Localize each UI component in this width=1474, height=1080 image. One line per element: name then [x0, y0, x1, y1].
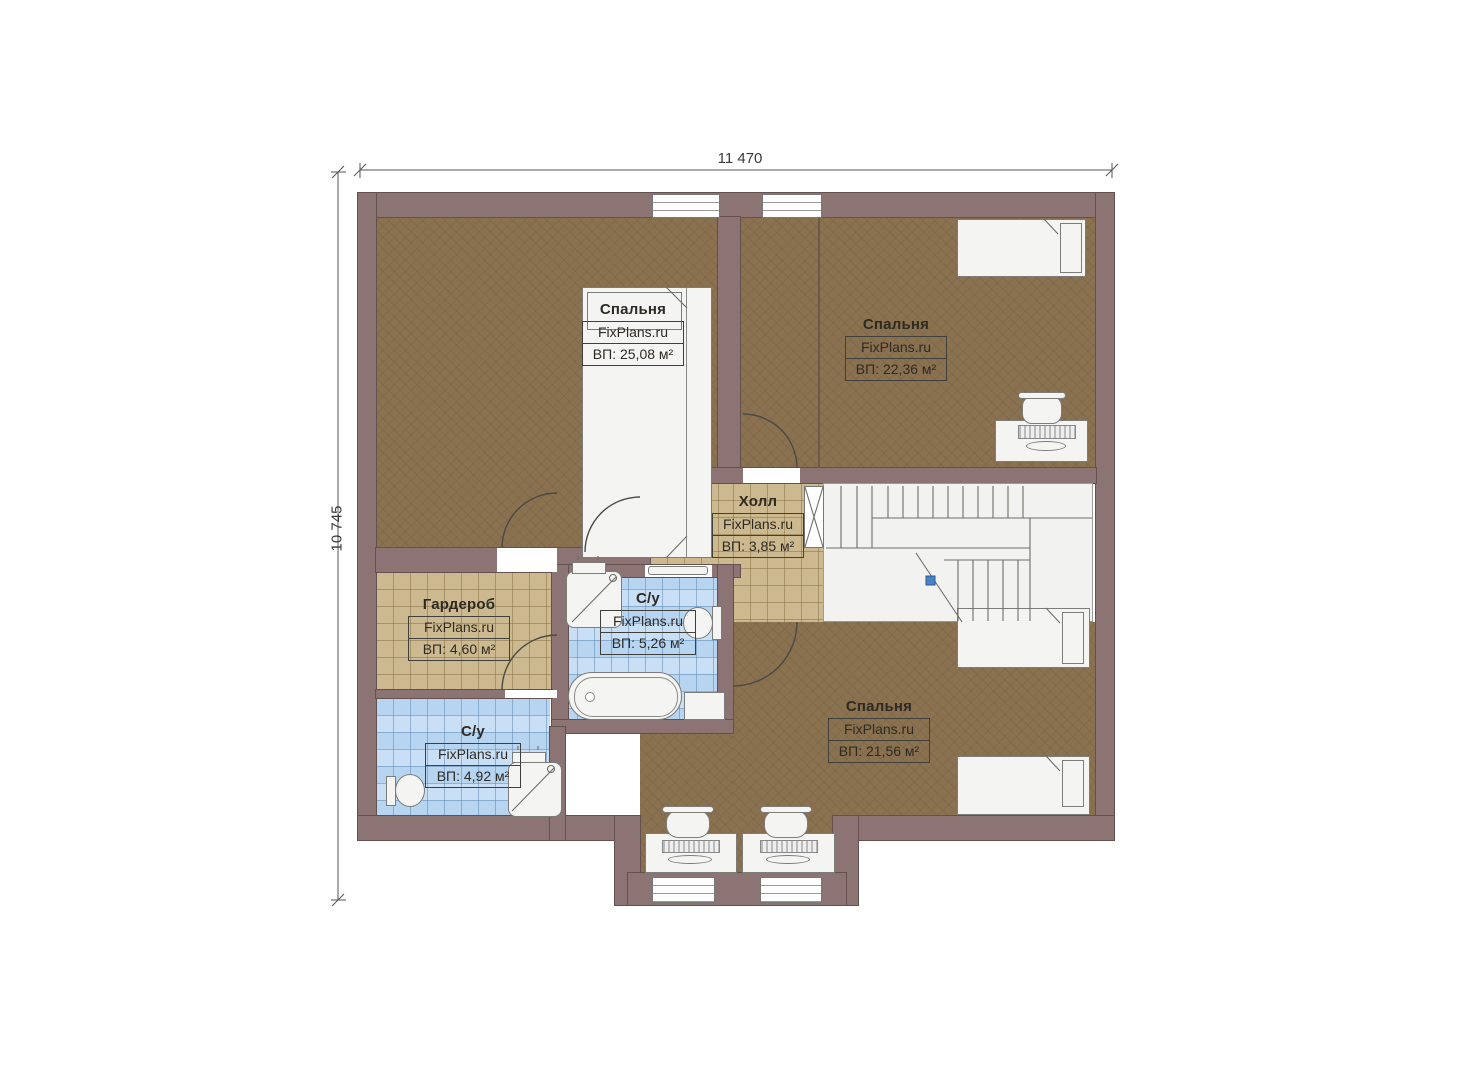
watermark-text: FixPlans.ru — [713, 514, 803, 535]
room-area: ВП: 5,26 м² — [601, 632, 695, 654]
staircase — [823, 483, 1093, 622]
room-area: ВП: 22,36 м² — [846, 358, 946, 380]
chair-bay-1-back — [662, 806, 714, 813]
room-name: Спальня — [828, 698, 930, 715]
watermark-text: FixPlans.ru — [846, 337, 946, 358]
desk-bay-2-item — [766, 855, 810, 864]
dimension-height: 10 745 — [329, 489, 346, 569]
room-label-wardrobe: Гардероб FixPlans.ru ВП: 4,60 м² — [408, 596, 510, 661]
watermark-text: FixPlans.ru — [409, 617, 509, 638]
window-top-1 — [652, 194, 720, 218]
stair-shaft-box — [804, 486, 824, 548]
bed-single-bottom-pillow — [1062, 760, 1084, 807]
wall-right — [1096, 193, 1114, 840]
wall-bathroom1-bottom — [552, 720, 733, 733]
chair-bedroom2 — [1022, 396, 1062, 424]
wall-top — [358, 193, 1114, 217]
room-name: Спальня — [845, 316, 947, 333]
watermark-text: FixPlans.ru — [426, 744, 520, 765]
wall-left — [358, 193, 376, 840]
toilet-1-tank — [712, 606, 722, 640]
room-name: С/у — [600, 590, 696, 607]
wall-line-bedroom2-strip — [818, 217, 820, 468]
desk-bay-2-keyboard — [760, 840, 818, 853]
room-label-bedroom-3: Спальня FixPlans.ru ВП: 21,56 м² — [828, 698, 930, 763]
room-label-bathroom-1: С/у FixPlans.ru ВП: 5,26 м² — [600, 590, 696, 655]
desk-bay-2 — [742, 833, 835, 873]
chair-bay-1 — [666, 810, 710, 838]
washing-machine — [684, 692, 725, 720]
bed-double-divider — [686, 288, 687, 557]
watermark-text: FixPlans.ru — [829, 719, 929, 740]
desk-bay-1-item — [668, 855, 712, 864]
wall-bedroom1-hallstrip — [718, 217, 740, 468]
door-opening-hallstrip — [743, 468, 800, 483]
room-label-bathroom-2: С/у FixPlans.ru ВП: 4,92 м² — [425, 723, 521, 788]
room-area: ВП: 25,08 м² — [583, 343, 683, 365]
desk-bedroom2-item — [1026, 441, 1066, 451]
floor-plan-canvas: 11 470 10 745 Спальня FixPlans.ru ВП: 25… — [0, 0, 1474, 1080]
bed-single-top-pillow — [1060, 223, 1082, 273]
watermark-text: FixPlans.ru — [583, 322, 683, 343]
room-name: С/у — [425, 723, 521, 740]
window-bay-2 — [760, 877, 822, 903]
bed-single-mid-pillow — [1062, 612, 1084, 664]
bathtub-drain — [585, 692, 595, 702]
chair-bay-2-back — [760, 806, 812, 813]
room-label-bedroom-2: Спальня FixPlans.ru ВП: 22,36 м² — [845, 316, 947, 381]
room-name: Спальня — [582, 301, 684, 318]
chair-bedroom2-back — [1018, 392, 1066, 399]
room-area: ВП: 4,92 м² — [426, 765, 520, 787]
room-label-bedroom-1: Спальня FixPlans.ru ВП: 25,08 м² — [582, 301, 684, 366]
wall-above-stairs — [650, 468, 1096, 483]
door-opening-bedroom1 — [497, 548, 557, 572]
room-name: Гардероб — [408, 596, 510, 613]
window-bay-1 — [652, 877, 715, 903]
room-area: ВП: 3,85 м² — [713, 535, 803, 557]
desk-bay-1 — [645, 833, 737, 873]
desk-bedroom2-keyboard — [1018, 425, 1076, 439]
bathroom1-door-leaf — [648, 566, 708, 575]
watermark-text: FixPlans.ru — [601, 611, 695, 632]
desk-bay-1-keyboard — [662, 840, 720, 853]
wall-bottom-left — [358, 816, 620, 840]
toilet-2-bowl — [395, 774, 425, 807]
room-area: ВП: 21,56 м² — [829, 740, 929, 762]
room-area: ВП: 4,60 м² — [409, 638, 509, 660]
room-label-hall: Холл FixPlans.ru ВП: 3,85 м² — [712, 493, 804, 558]
dimension-width: 11 470 — [700, 150, 780, 167]
bedroom-3-floor-left — [640, 733, 733, 816]
sink-1 — [572, 562, 606, 574]
window-top-2 — [762, 194, 822, 218]
door-opening-wardrobe — [505, 690, 557, 698]
chair-bay-2 — [764, 810, 808, 838]
room-name: Холл — [712, 493, 804, 510]
wall-bottom-right — [853, 816, 1114, 840]
